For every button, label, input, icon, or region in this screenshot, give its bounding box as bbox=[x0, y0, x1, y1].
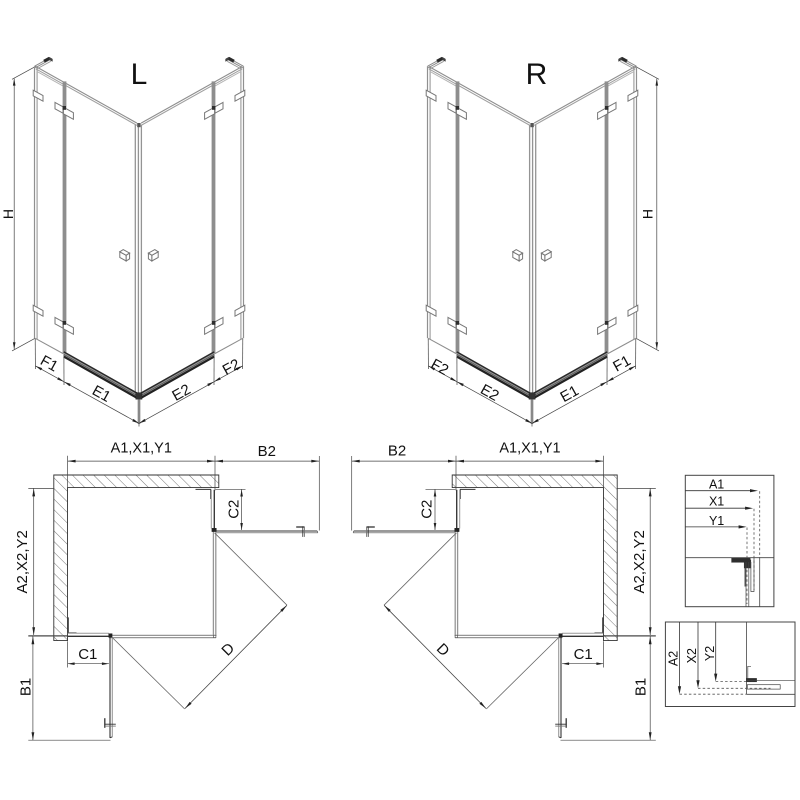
svg-text:R: R bbox=[526, 58, 548, 91]
svg-text:A1,X1,Y1: A1,X1,Y1 bbox=[111, 441, 172, 457]
svg-text:X2: X2 bbox=[685, 648, 699, 663]
svg-text:Y1: Y1 bbox=[709, 514, 724, 528]
svg-text:C1: C1 bbox=[574, 646, 593, 663]
svg-text:A2: A2 bbox=[667, 651, 681, 666]
svg-text:C2: C2 bbox=[225, 500, 242, 519]
svg-text:C2: C2 bbox=[419, 500, 436, 519]
svg-text:A1,X1,Y1: A1,X1,Y1 bbox=[499, 441, 560, 457]
svg-text:H: H bbox=[0, 209, 16, 219]
svg-text:B2: B2 bbox=[258, 443, 276, 460]
svg-text:A1: A1 bbox=[709, 478, 724, 492]
svg-text:B1: B1 bbox=[18, 678, 35, 696]
svg-text:Y2: Y2 bbox=[703, 646, 717, 661]
svg-text:H: H bbox=[640, 209, 656, 219]
svg-text:B2: B2 bbox=[388, 443, 406, 460]
svg-text:L: L bbox=[131, 58, 148, 91]
svg-text:A2,X2,Y2: A2,X2,Y2 bbox=[14, 530, 31, 593]
svg-text:A2,X2,Y2: A2,X2,Y2 bbox=[631, 530, 648, 593]
svg-text:B1: B1 bbox=[633, 678, 650, 696]
svg-text:C1: C1 bbox=[78, 646, 97, 663]
svg-text:X1: X1 bbox=[709, 494, 724, 508]
